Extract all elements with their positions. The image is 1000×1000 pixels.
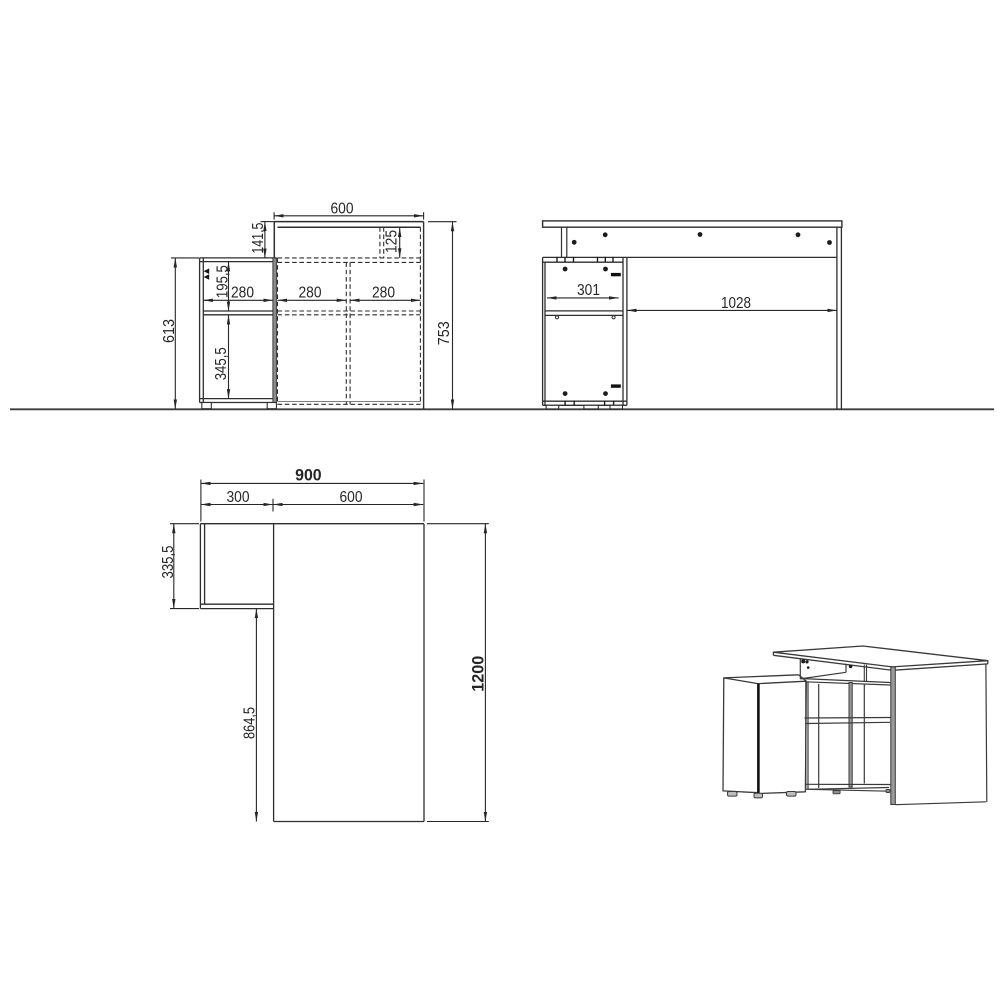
svg-text:613: 613	[161, 319, 178, 343]
svg-text:335,5: 335,5	[160, 545, 177, 578]
svg-text:900: 900	[295, 466, 322, 484]
svg-text:280: 280	[299, 284, 322, 301]
svg-text:141,5: 141,5	[250, 223, 267, 254]
svg-text:864,5: 864,5	[241, 707, 258, 739]
svg-text:600: 600	[340, 489, 363, 506]
svg-text:125: 125	[383, 230, 400, 253]
svg-text:301: 301	[577, 282, 600, 299]
svg-text:280: 280	[231, 284, 254, 301]
svg-text:195,5: 195,5	[214, 265, 231, 298]
svg-text:280: 280	[372, 284, 395, 301]
svg-text:600: 600	[331, 200, 354, 217]
svg-text:1200: 1200	[469, 656, 487, 692]
svg-text:345,5: 345,5	[213, 347, 230, 380]
svg-text:753: 753	[436, 321, 453, 345]
svg-text:300: 300	[227, 489, 250, 506]
svg-text:1028: 1028	[721, 295, 751, 312]
